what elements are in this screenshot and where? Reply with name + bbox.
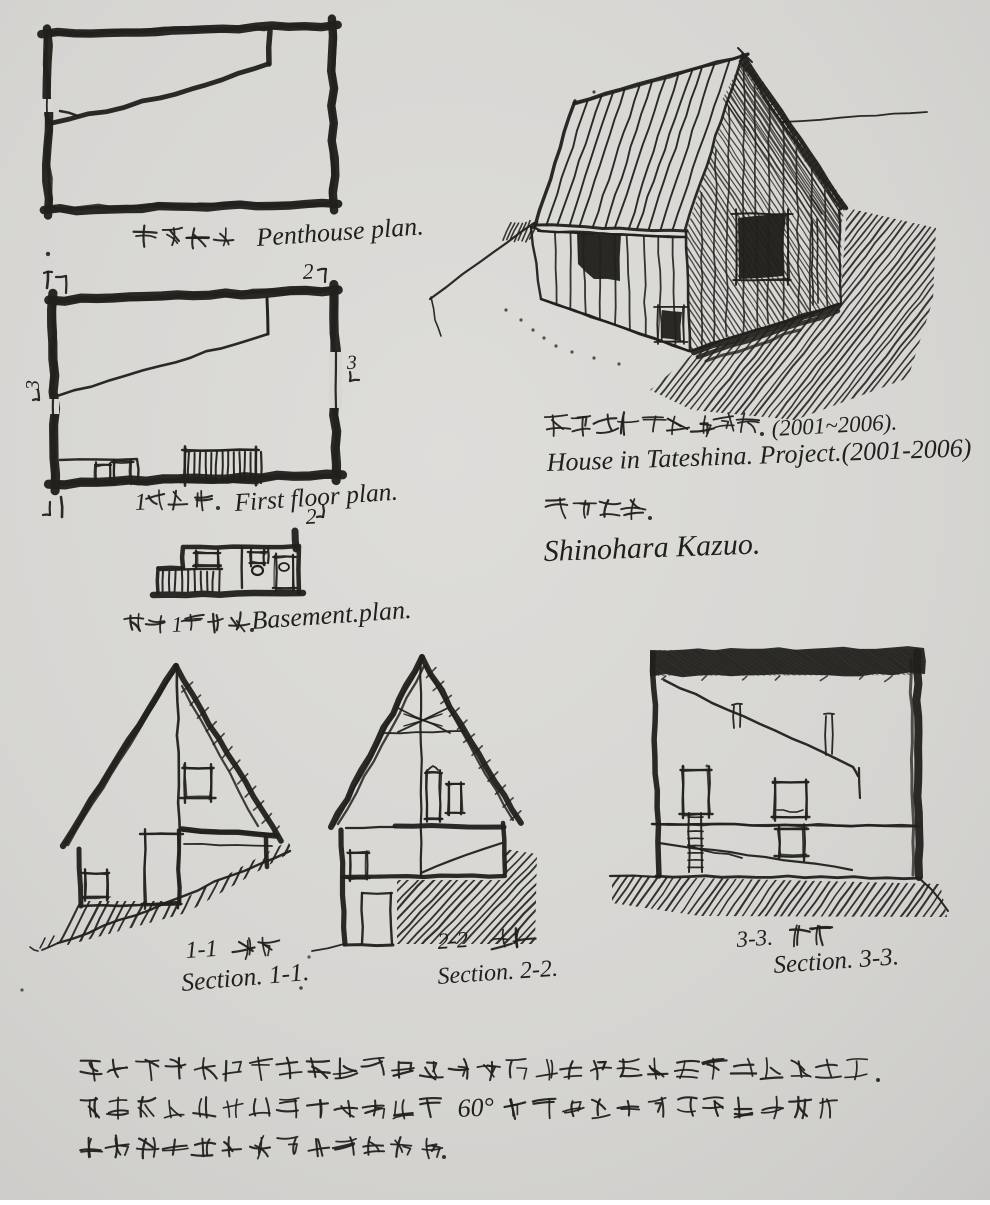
svg-text:1-1: 1-1 xyxy=(185,936,219,964)
svg-text:3: 3 xyxy=(22,380,44,391)
svg-text:3: 3 xyxy=(345,352,357,374)
svg-text:3-3.: 3-3. xyxy=(735,925,774,953)
svg-text:1: 1 xyxy=(171,611,183,637)
svg-text:1: 1 xyxy=(134,489,147,516)
svg-text:60°: 60° xyxy=(457,1092,495,1123)
svg-text:2: 2 xyxy=(302,258,314,284)
svg-text:2-2: 2-2 xyxy=(437,927,469,954)
